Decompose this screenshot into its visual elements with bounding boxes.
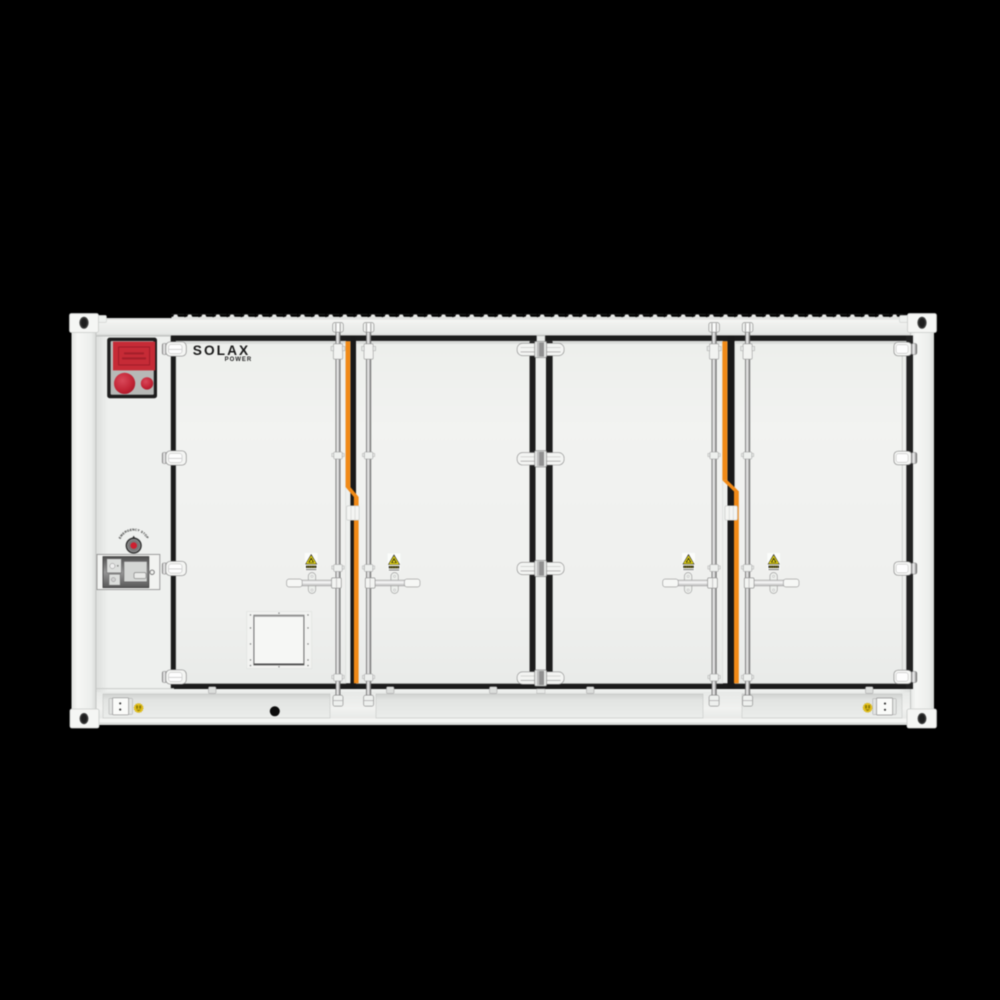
svg-text:SOLAX: SOLAX bbox=[193, 343, 250, 358]
svg-text:POWER: POWER bbox=[225, 357, 253, 363]
